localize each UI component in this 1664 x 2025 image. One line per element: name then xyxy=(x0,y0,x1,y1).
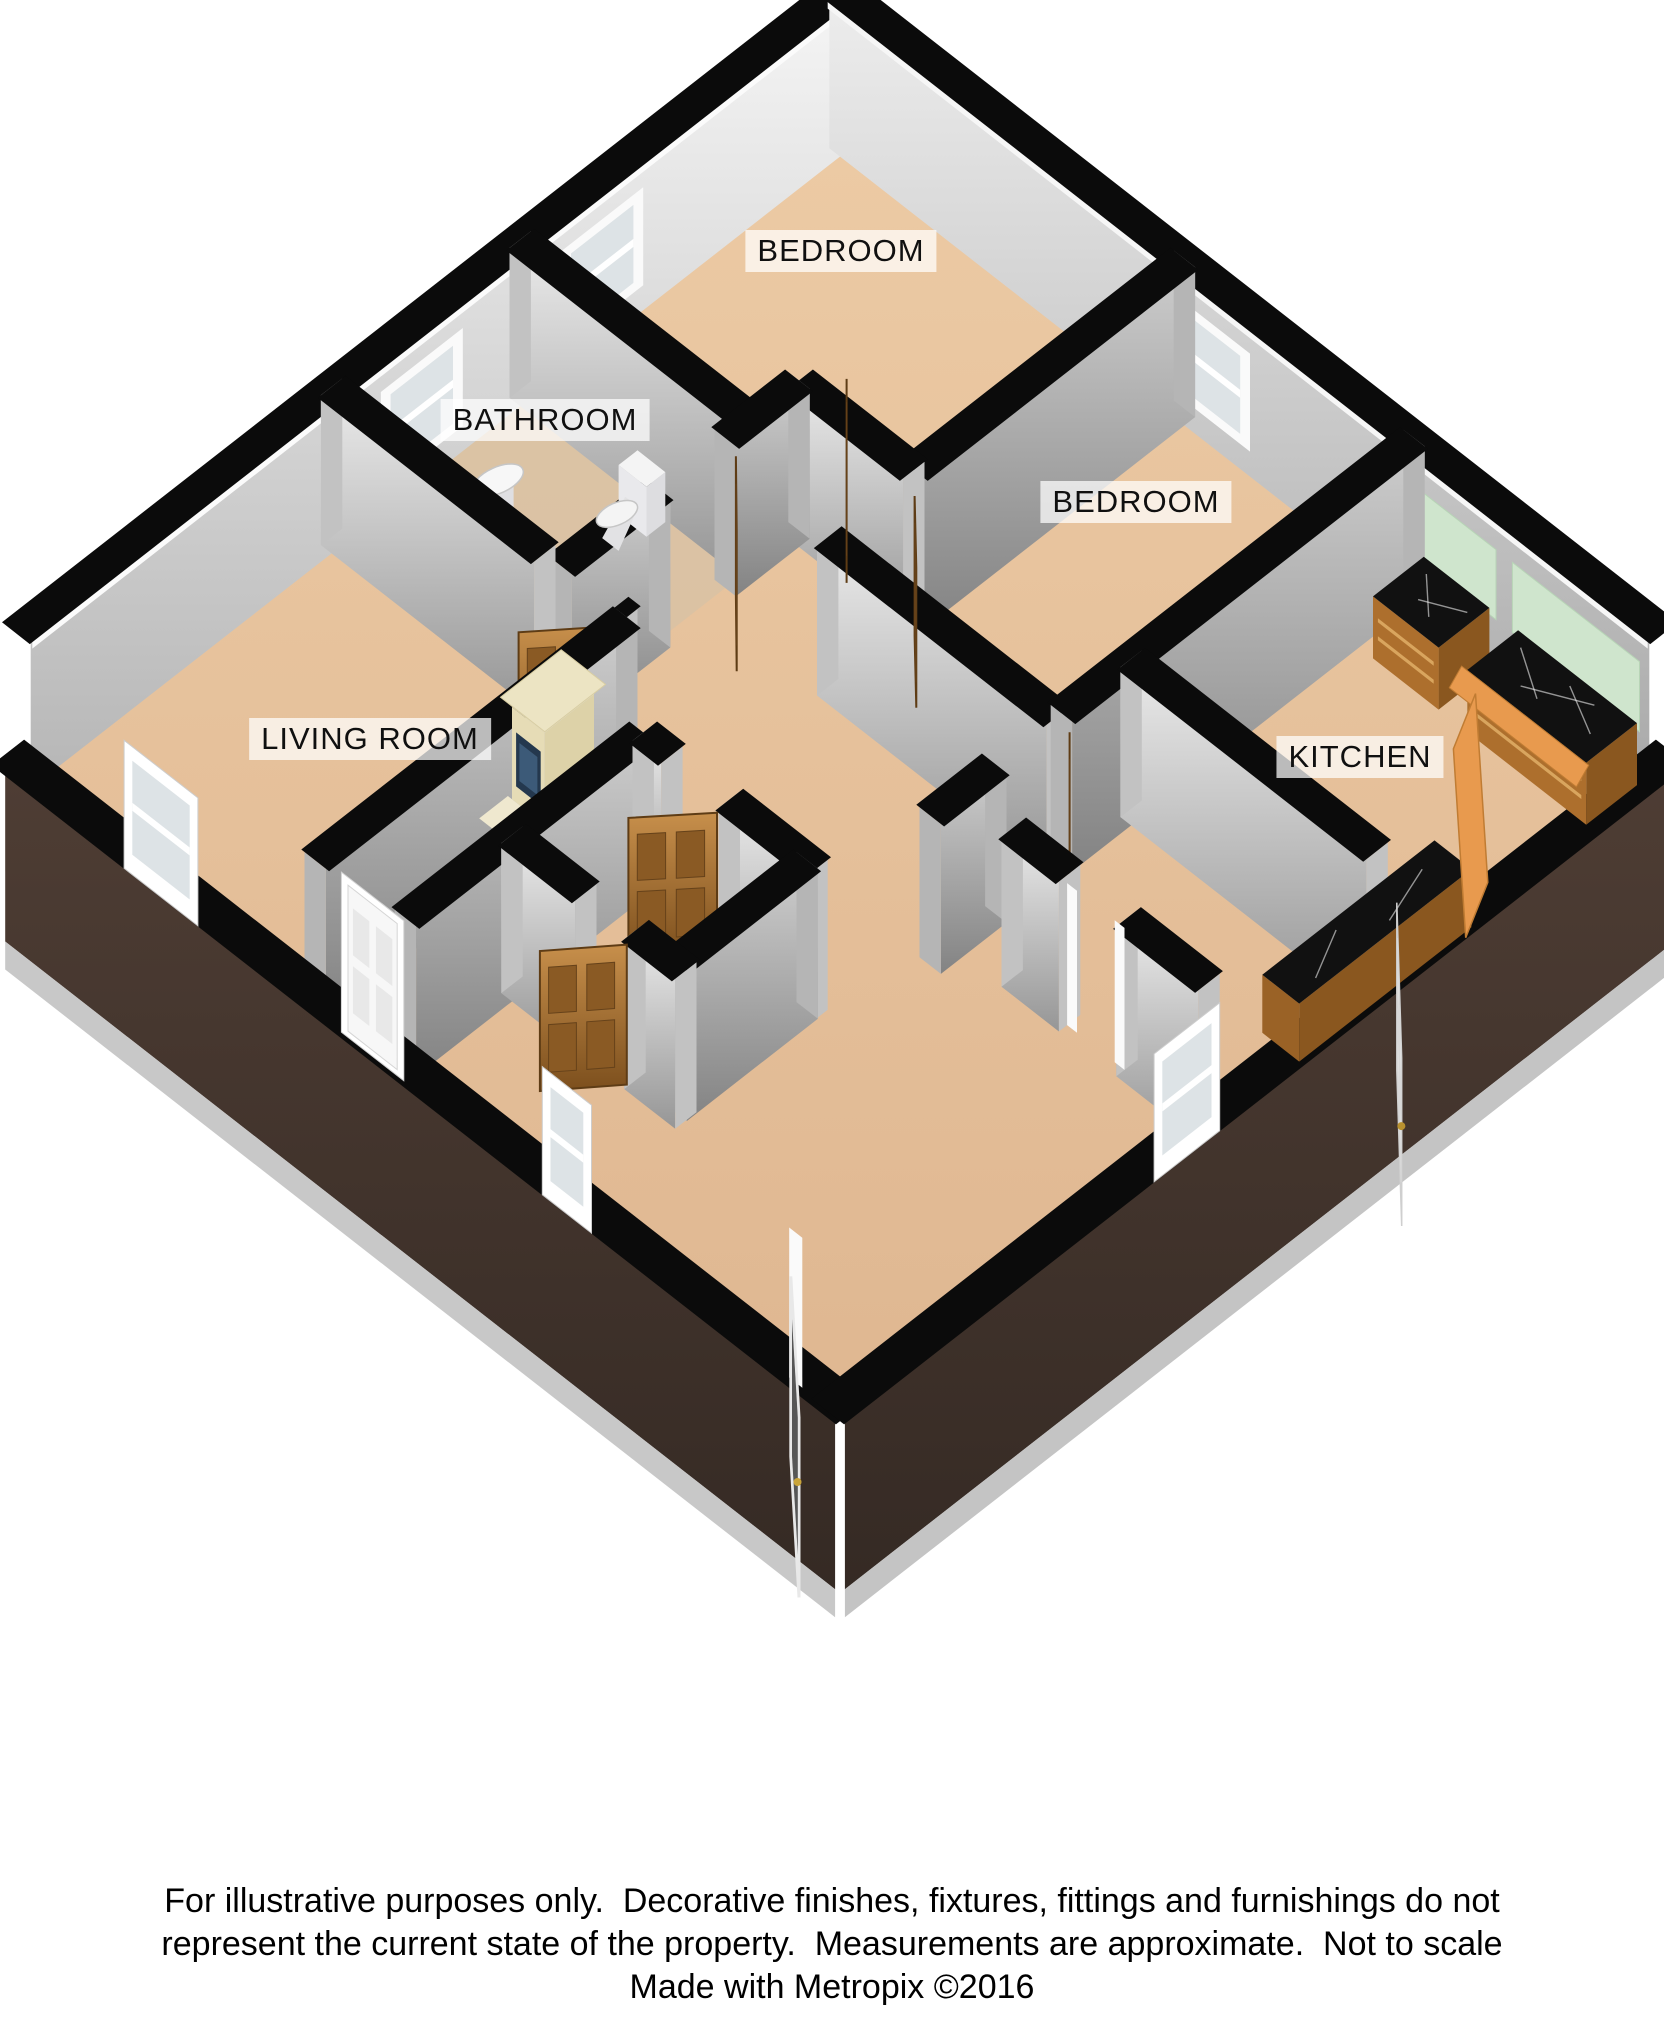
door-panel xyxy=(549,1023,577,1073)
room-label-living-room: LIVING ROOM xyxy=(249,718,491,760)
door-handle xyxy=(794,1478,802,1486)
door-panel xyxy=(587,1020,615,1070)
room-label-bathroom: BATHROOM xyxy=(441,399,650,441)
room-label-kitchen: KITCHEN xyxy=(1276,736,1443,778)
disclaimer-footer: For illustrative purposes only. Decorati… xyxy=(0,1880,1664,2009)
door-panel xyxy=(587,962,615,1010)
door-panel xyxy=(676,830,704,878)
door-panel xyxy=(549,965,577,1013)
carpet-floor xyxy=(20,140,1660,1420)
door-panel xyxy=(916,612,917,683)
room-label-bedroom-right: BEDROOM xyxy=(1040,481,1231,523)
room-label-bedroom-top: BEDROOM xyxy=(745,230,936,272)
store-wall-end xyxy=(675,962,696,1129)
bathroom-hall-wall-end xyxy=(715,430,736,597)
floorplan-page: { "floorplan": { "rooms": [ {"id": "bedr… xyxy=(0,0,1664,2025)
door-handle xyxy=(1397,1122,1405,1130)
door-jamb xyxy=(1115,920,1125,1070)
disclaimer-line-1: For illustrative purposes only. Decorati… xyxy=(0,1880,1664,1923)
made-with-credit: Made with Metropix ©2016 xyxy=(0,1966,1664,2009)
door-panel xyxy=(637,833,665,881)
disclaimer-line-2: represent the current state of the prope… xyxy=(0,1923,1664,1966)
door-jamb xyxy=(1067,883,1077,1033)
kitchen-wall-end xyxy=(920,807,941,974)
